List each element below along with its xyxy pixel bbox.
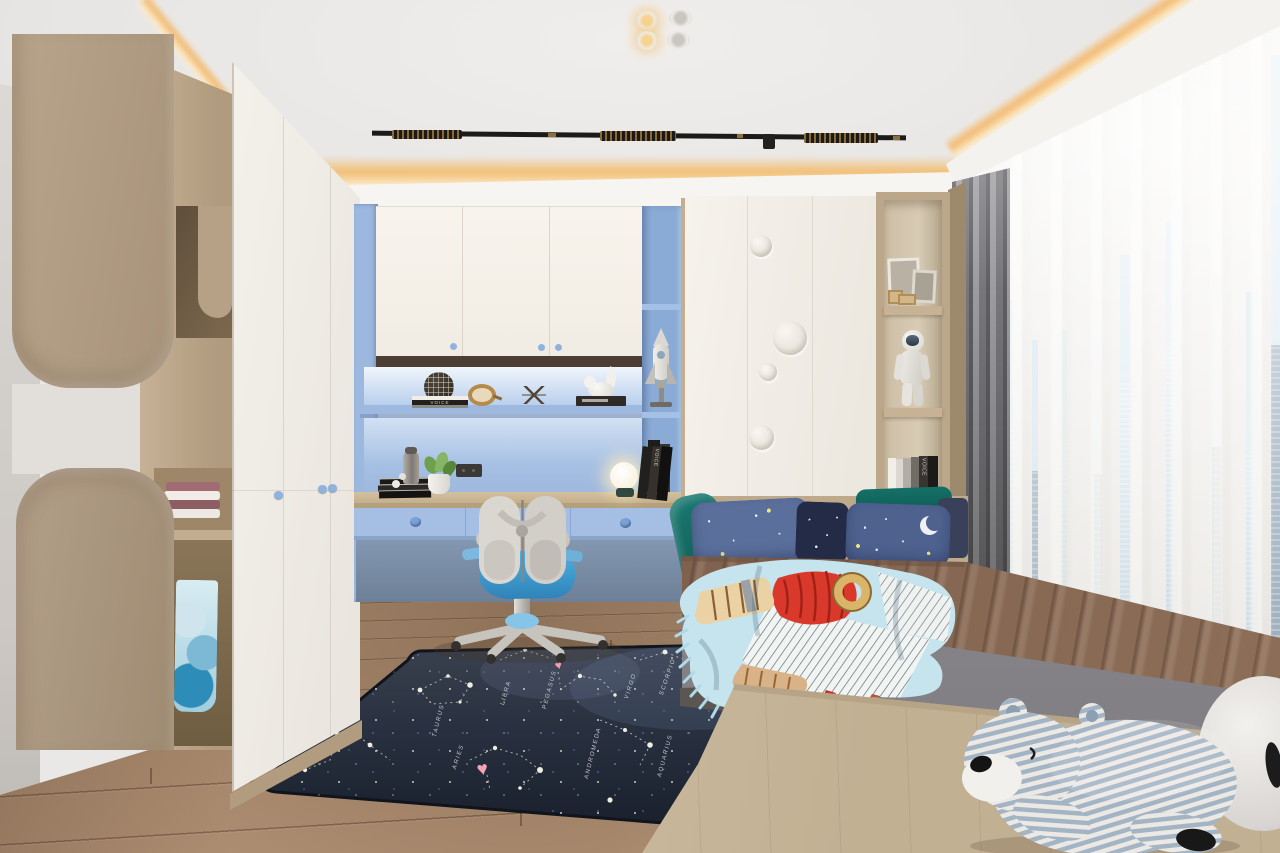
folded-towel <box>166 482 220 491</box>
left-wood-panel-lower <box>16 468 174 750</box>
globe-lamp <box>610 462 638 490</box>
spotlight-lit <box>636 31 658 50</box>
rocket-model <box>644 328 678 408</box>
bubble-relief <box>759 363 777 381</box>
hanging-jacket <box>174 580 218 713</box>
socket-dot <box>462 469 465 472</box>
cabinet-door-seam <box>549 207 550 359</box>
spotlight-lit <box>636 11 658 30</box>
wardrobe-door-seam <box>747 196 748 506</box>
globe-lamp-base <box>616 488 634 497</box>
wardrobe-edge-shadow <box>232 62 234 792</box>
drawer-seam <box>570 508 571 538</box>
bedroom-render: ♥ ♥ ERIDANUS TAURUS ARIES LIBRA PEGASUS … <box>0 0 1280 853</box>
folded-towel <box>164 491 220 500</box>
nook-upper-cabinets <box>376 206 642 359</box>
shelf-board <box>884 408 942 417</box>
shelf-cavity: VOICE <box>884 200 942 502</box>
wardrobe-door-seam <box>330 148 331 788</box>
cabinet-knob <box>538 344 545 351</box>
book <box>379 490 431 499</box>
spotlight-off <box>669 9 692 27</box>
book-spine-text: VOICE <box>652 448 660 467</box>
cubby-divider <box>642 304 682 310</box>
wood-niche-flap <box>198 206 232 318</box>
track-light-dot <box>737 134 743 138</box>
clothes-niche <box>170 540 235 746</box>
under-desk-shadow <box>356 540 684 602</box>
track-light-segment <box>600 131 676 141</box>
bubble-relief <box>773 321 807 355</box>
rocket-window <box>657 351 665 359</box>
pillow-galaxy <box>795 501 849 563</box>
rocket-body <box>653 344 669 380</box>
book-label-band <box>582 399 608 402</box>
pillow-starry <box>690 497 811 567</box>
right-wardrobe <box>685 196 876 506</box>
track-light-segment <box>392 130 462 139</box>
astronaut-visor <box>906 335 919 346</box>
book <box>412 405 468 408</box>
left-wood-panel-upper <box>12 34 174 388</box>
right-shelf-unit: VOICE <box>876 192 950 510</box>
bubble-relief <box>750 235 772 257</box>
wardrobe-door-seam <box>812 196 813 506</box>
rocket-stand <box>659 388 664 403</box>
leaning-books: VOICE <box>637 442 681 502</box>
cabinet-door-seam <box>462 207 463 359</box>
track-light-dot <box>548 133 556 137</box>
shelf-book-stack: VOICE <box>412 396 468 408</box>
brass-clock <box>468 384 496 406</box>
astronaut-leg <box>912 383 923 406</box>
bubble-relief <box>749 425 774 450</box>
spotlight-off <box>667 31 690 49</box>
cabinet-knob <box>450 343 457 350</box>
wardrobe-door-seam-horizontal <box>232 490 360 491</box>
drawer-knob <box>410 517 421 527</box>
desk-drawers <box>354 508 684 538</box>
pillow-starry <box>845 502 951 568</box>
astronaut-leg <box>901 383 912 406</box>
thermos-cap <box>405 447 417 454</box>
socket-dot <box>472 469 475 472</box>
shelf-book-flat <box>576 396 626 406</box>
track-spotlight-cylinder <box>763 134 775 149</box>
wardrobe-door-seam <box>283 98 284 778</box>
plant-pot <box>428 474 450 494</box>
wardrobe-knob <box>318 485 327 493</box>
shelf-board <box>884 306 942 315</box>
wardrobe-knob <box>328 484 337 492</box>
decor-orb <box>392 480 400 488</box>
track-light-segment <box>804 133 878 143</box>
bird-head <box>584 376 596 388</box>
cubby-divider <box>642 412 682 418</box>
wood-cube-decor <box>898 294 916 305</box>
pillow-moon <box>920 516 939 535</box>
astronaut-figurine <box>894 330 930 406</box>
book-spine-text: VOICE <box>921 458 927 476</box>
cabinet-knob <box>555 344 562 351</box>
drawer-seam <box>465 508 466 538</box>
dragonfly-ornament <box>522 386 546 404</box>
decor-orb <box>399 473 406 480</box>
wall-socket <box>456 464 482 477</box>
track-light-dot <box>893 136 900 140</box>
nook-shelf-board <box>360 405 652 414</box>
folded-towel <box>167 500 220 509</box>
pillow-moon-cut <box>926 514 943 531</box>
rocket-nozzle <box>656 380 666 388</box>
wardrobe-knob <box>274 491 283 499</box>
thermos-flask <box>403 452 419 484</box>
rocket-base <box>650 402 672 407</box>
drawer-knob <box>620 518 631 528</box>
